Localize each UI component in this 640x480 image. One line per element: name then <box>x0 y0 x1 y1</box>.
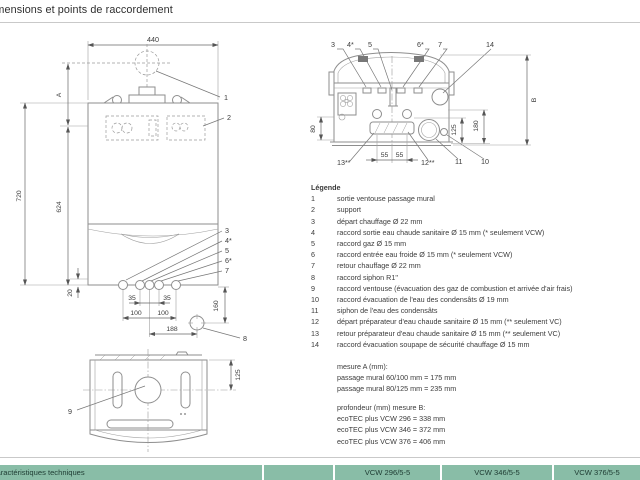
bottom-callout-4: 4* <box>347 40 354 49</box>
measure-a-title: mesure A (mm): <box>337 361 456 372</box>
front-dim-624: 624 <box>56 201 63 213</box>
top-dim-125: 125 <box>235 369 242 381</box>
bottom-dim-b: B <box>531 97 538 102</box>
legend-item-text: raccord siphon R1" <box>337 272 633 283</box>
bottom-callout-10: 10 <box>481 157 489 166</box>
elbow-12 <box>403 110 412 119</box>
legend-item: 6raccord entrée eau froide Ø 15 mm (* se… <box>311 249 633 260</box>
legend-item-number: 2 <box>311 204 337 215</box>
front-dim-a: A <box>56 92 63 97</box>
legend-item-number: 12 <box>311 316 337 327</box>
legend-item-text: départ préparateur d'eau chaude sanitair… <box>337 316 633 327</box>
safety-valve-outlet <box>432 89 448 105</box>
top-view-drawing: 9 125 <box>68 349 242 452</box>
connector-5 <box>145 281 154 290</box>
bottom-callout-14: 14 <box>486 40 494 49</box>
legend-item: 10raccord évacuation de l'eau des conden… <box>311 294 633 305</box>
bottom-view-drawing: 80 55 55 13** 12** 11 10 <box>310 40 538 167</box>
measure-b-line: ecoTEC plus VCW 346 = 372 mm <box>337 424 445 435</box>
legend-item-number: 5 <box>311 238 337 249</box>
measure-a-note: mesure A (mm): passage mural 60/100 mm =… <box>337 361 456 395</box>
front-callout-5: 5 <box>225 246 229 255</box>
legend-item: 14raccord évacuation soupape de sécurité… <box>311 339 633 350</box>
legend-item: 7retour chauffage Ø 22 mm <box>311 260 633 271</box>
legend-item-number: 6 <box>311 249 337 260</box>
legend-item: 5raccord gaz Ø 15 mm <box>311 238 633 249</box>
legend-item-text: support <box>337 204 633 215</box>
table-divider <box>0 457 640 458</box>
flue-connection-top <box>135 377 161 403</box>
bottom-callout-5: 5 <box>368 40 372 49</box>
front-callout-3: 3 <box>225 226 229 235</box>
connector-7 <box>172 281 181 290</box>
legend-item: 13retour préparateur d'eau chaude sanita… <box>311 328 633 339</box>
connector-4 <box>136 281 145 290</box>
front-dim-160: 160 <box>213 300 220 312</box>
legend-item: 8raccord siphon R1" <box>311 272 633 283</box>
front-dim-20: 20 <box>67 289 74 297</box>
legend-item-number: 11 <box>311 305 337 316</box>
front-dim-440: 440 <box>147 35 159 44</box>
front-callout-4: 4* <box>225 236 232 245</box>
legend-item-number: 1 <box>311 193 337 204</box>
front-callout-6: 6* <box>225 256 232 265</box>
legend: Légende 1sortie ventouse passage mural 2… <box>311 182 633 350</box>
legend-item-text: raccord évacuation de l'eau des condensâ… <box>337 294 633 305</box>
legend-item-number: 13 <box>311 328 337 339</box>
measure-a-line: passage mural 60/100 mm = 175 mm <box>337 372 456 383</box>
front-dim-35a: 35 <box>128 295 136 302</box>
bottom-dim-80: 80 <box>310 125 317 133</box>
legend-item-text: siphon de l'eau des condensâts <box>337 305 633 316</box>
spec-table-label: Caractéristiques techniques <box>0 468 85 477</box>
front-callout-8: 8 <box>243 334 247 343</box>
bottom-callout-6: 6* <box>417 40 424 49</box>
front-dim-100a: 100 <box>130 310 142 317</box>
bottom-dim-125: 125 <box>451 124 458 136</box>
legend-item: 12départ préparateur d'eau chaude sanita… <box>311 316 633 327</box>
bottom-callout-11: 11 <box>455 157 462 166</box>
manual-page: Dimensions et points de raccordement 440… <box>0 0 640 480</box>
legend-item-text: raccord sortie eau chaude sanitaire Ø 15… <box>337 227 633 238</box>
bottom-dim-55a: 55 <box>381 152 389 159</box>
connector-6 <box>155 281 164 290</box>
legend-item-text: sortie ventouse passage mural <box>337 193 633 204</box>
spec-table-column-vcw346: VCW 346/5-5 <box>442 465 552 480</box>
legend-item: 2support <box>311 204 633 215</box>
legend-item-number: 3 <box>311 216 337 227</box>
spec-table-unit-cell <box>264 465 333 480</box>
top-callout-9: 9 <box>68 407 72 416</box>
bottom-dim-55b: 55 <box>396 152 404 159</box>
legend-item-text: raccord ventouse (évacuation des gaz de … <box>337 283 633 294</box>
boiler-outline <box>88 103 218 285</box>
legend-item-number: 14 <box>311 339 337 350</box>
legend-item-text: retour chauffage Ø 22 mm <box>337 260 633 271</box>
front-dim-720: 720 <box>16 190 23 202</box>
elbow-13 <box>373 110 382 119</box>
legend-item: 4raccord sortie eau chaude sanitaire Ø 1… <box>311 227 633 238</box>
spec-table-column-vcw376: VCW 376/5-5 <box>554 465 640 480</box>
legend-item-text: retour préparateur d'eau chaude sanitair… <box>337 328 633 339</box>
spec-table-header-row: Caractéristiques techniques VCW 296/5-5 … <box>0 465 640 480</box>
spec-table-column-vcw296: VCW 296/5-5 <box>335 465 440 480</box>
front-callout-1: 1 <box>224 93 228 102</box>
bottom-callout-7: 7 <box>438 40 442 49</box>
condensate-outlet <box>441 129 448 136</box>
spec-table-label-cell: Caractéristiques techniques <box>0 465 262 480</box>
measure-b-line: ecoTEC plus VCW 376 = 406 mm <box>337 436 445 447</box>
bottom-callout-13: 13** <box>337 158 351 167</box>
measure-b-note: profondeur (mm) mesure B: ecoTEC plus VC… <box>337 402 445 447</box>
legend-item: 11siphon de l'eau des condensâts <box>311 305 633 316</box>
legend-item-text: raccord évacuation soupape de sécurité c… <box>337 339 633 350</box>
legend-item-text: départ chauffage Ø 22 mm <box>337 216 633 227</box>
legend-item: 9raccord ventouse (évacuation des gaz de… <box>311 283 633 294</box>
legend-item-number: 10 <box>311 294 337 305</box>
front-dim-35b: 35 <box>163 295 171 302</box>
front-view-drawing: 440 1 2 <box>16 35 247 343</box>
legend-item: 3départ chauffage Ø 22 mm <box>311 216 633 227</box>
bottom-callout-3: 3 <box>331 40 335 49</box>
legend-item-text: raccord gaz Ø 15 mm <box>337 238 633 249</box>
front-callout-7: 7 <box>225 266 229 275</box>
bottom-dim-180: 180 <box>473 120 480 132</box>
measure-b-line: ecoTEC plus VCW 296 = 338 mm <box>337 413 445 424</box>
legend-item-number: 8 <box>311 272 337 283</box>
legend-item: 1sortie ventouse passage mural <box>311 193 633 204</box>
legend-item-number: 7 <box>311 260 337 271</box>
legend-item-number: 9 <box>311 283 337 294</box>
front-dim-100b: 100 <box>157 310 169 317</box>
connector-3 <box>119 281 128 290</box>
bottom-callout-12: 12** <box>421 158 435 167</box>
front-dim-188: 188 <box>166 326 178 333</box>
measure-b-title: profondeur (mm) mesure B: <box>337 402 445 413</box>
front-callout-2: 2 <box>227 113 231 122</box>
legend-item-text: raccord entrée eau froide Ø 15 mm (* seu… <box>337 249 633 260</box>
measure-a-line: passage mural 80/125 mm = 235 mm <box>337 383 456 394</box>
legend-item-number: 4 <box>311 227 337 238</box>
legend-heading: Légende <box>311 182 633 193</box>
